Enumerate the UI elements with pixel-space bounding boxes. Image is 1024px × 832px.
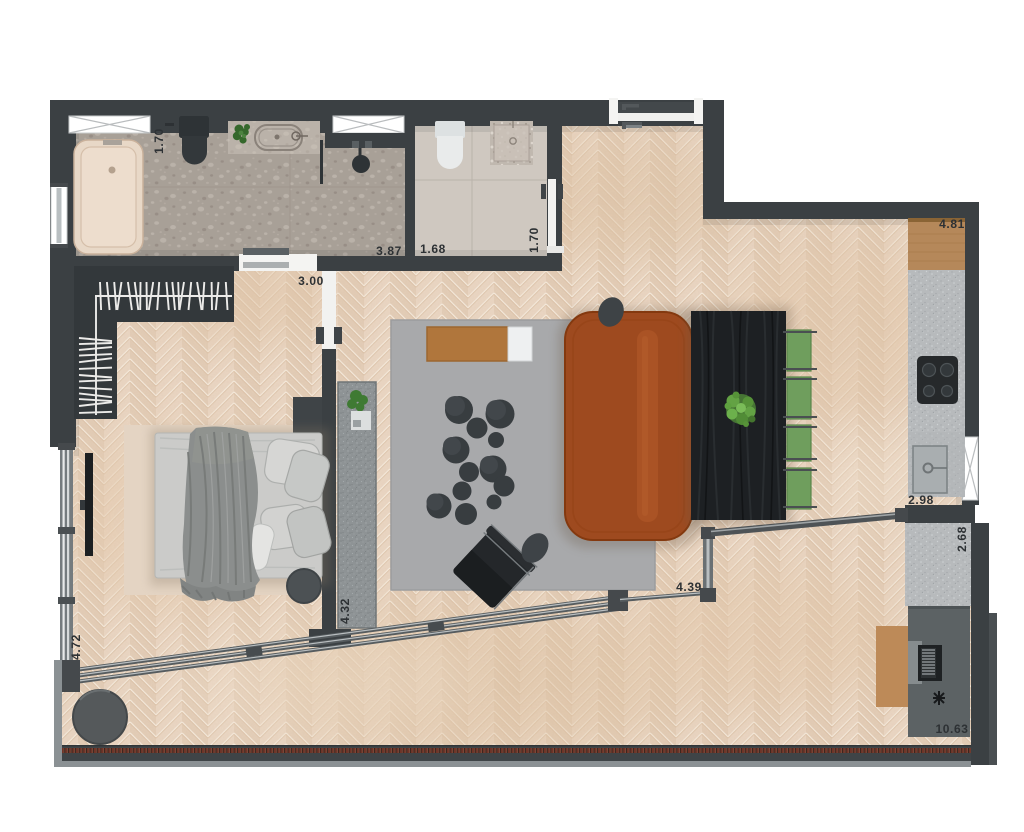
svg-text:1.70: 1.70 — [152, 128, 166, 154]
svg-text:10.63: 10.63 — [935, 722, 968, 736]
svg-text:3.87: 3.87 — [376, 244, 402, 258]
svg-text:4.81: 4.81 — [939, 217, 965, 231]
svg-text:3.00: 3.00 — [298, 274, 324, 288]
svg-text:4.39: 4.39 — [676, 580, 702, 594]
svg-text:4.32: 4.32 — [338, 598, 352, 624]
svg-text:2.68: 2.68 — [955, 526, 969, 552]
svg-text:2.98: 2.98 — [908, 493, 934, 507]
svg-text:1.68: 1.68 — [420, 242, 446, 256]
svg-text:4.72: 4.72 — [69, 634, 83, 660]
svg-text:1.70: 1.70 — [527, 227, 541, 253]
